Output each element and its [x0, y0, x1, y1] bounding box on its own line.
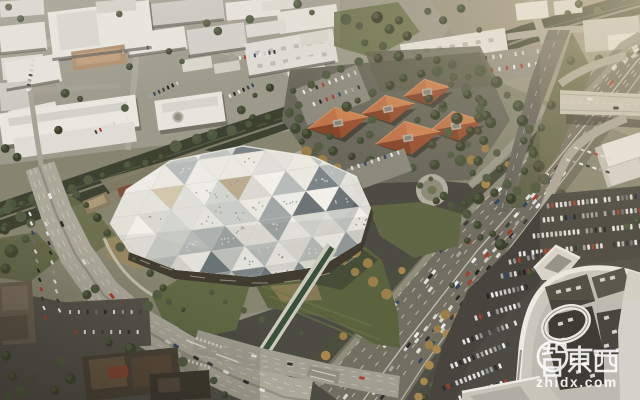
svg-text:zhidx.com: zhidx.com	[536, 375, 618, 390]
